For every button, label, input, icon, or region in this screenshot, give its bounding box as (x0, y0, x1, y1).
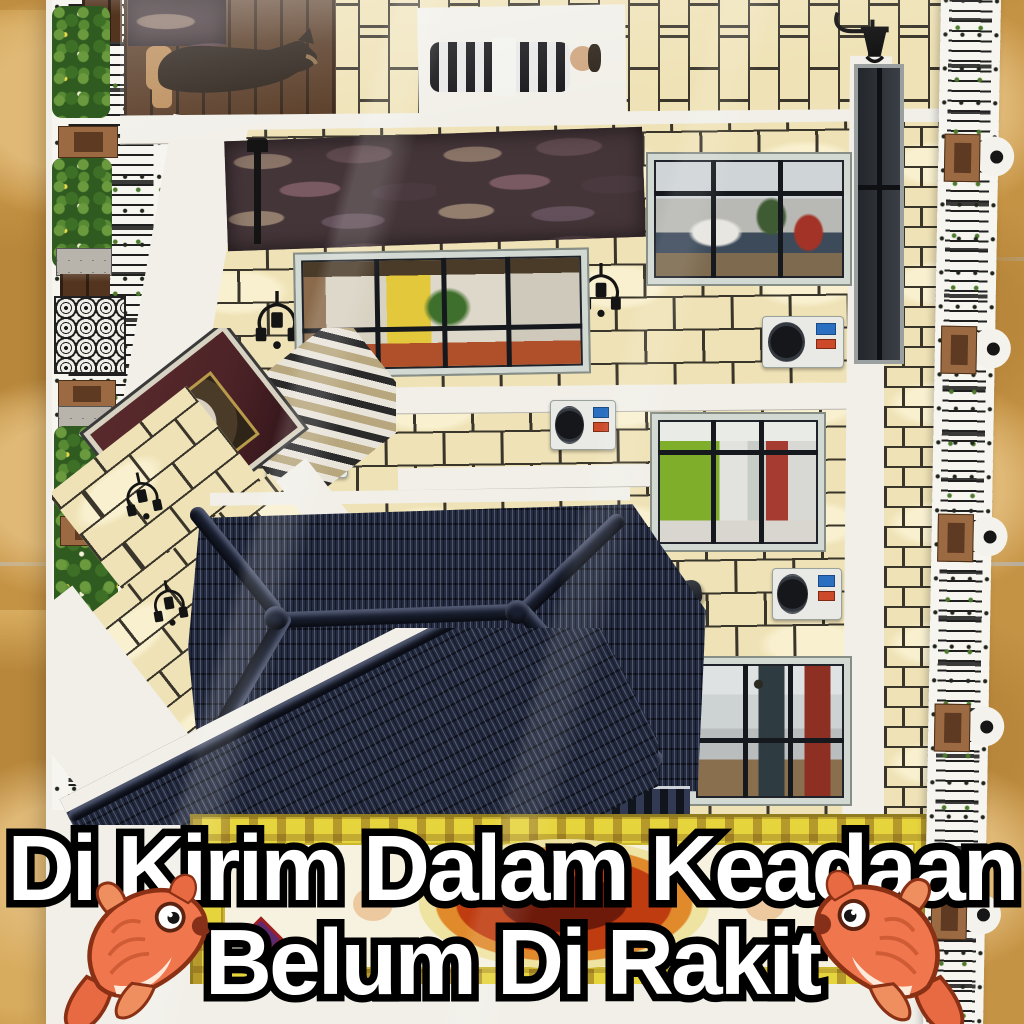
roof-ridge-cap (264, 606, 288, 630)
window-mullion (658, 450, 818, 455)
door-piece (60, 274, 110, 296)
roof-eave-ridge (66, 628, 570, 823)
living-room-window (690, 658, 850, 804)
ac-unit (762, 316, 844, 368)
ac-label (816, 323, 836, 335)
window-mullion (654, 191, 844, 196)
post-knob (980, 720, 993, 733)
bedroom-window (648, 154, 850, 284)
tall-dark-window (854, 64, 904, 364)
green-room-window (652, 414, 824, 550)
gate-post-piece (934, 704, 971, 753)
ac-fan (555, 406, 584, 444)
window-mullion (743, 664, 748, 798)
roof-sheet-small (59, 628, 658, 825)
product-photo: Di Kirim Dalam Keadaan Belum Di Rakit (0, 0, 1024, 1024)
stacked-stone-strip (224, 127, 646, 252)
ac-label (818, 575, 835, 587)
window-glass (698, 666, 842, 796)
lamp-post-pole (254, 146, 261, 244)
roof-sheet-small-clip (58, 628, 658, 825)
window-mullion (759, 420, 764, 544)
ac-fan (768, 322, 805, 362)
wall-lantern-icon (830, 8, 894, 66)
window-mullion (711, 160, 716, 278)
window-glass (656, 162, 842, 276)
ac-fan (777, 574, 808, 614)
fence-post (58, 126, 118, 158)
dog-figure (138, 16, 328, 118)
window-glass (660, 422, 816, 542)
lamp-post-head (247, 138, 268, 152)
woman-figure-hair (588, 44, 601, 72)
window-mullion (877, 68, 882, 360)
ac-label (593, 422, 609, 432)
roof-ridge-cap (505, 600, 529, 624)
woman-figure-sash (492, 38, 516, 96)
ac-label (593, 407, 609, 419)
window-mullion (696, 738, 844, 743)
garden-bush (52, 6, 110, 118)
tile-panel-piece (56, 248, 112, 276)
gate-post-piece (940, 326, 977, 375)
ac-unit (550, 400, 616, 450)
window-mullion (788, 664, 793, 798)
window-mullion (711, 420, 716, 544)
ac-label (818, 591, 835, 601)
ac-unit (772, 568, 842, 620)
window-mullion (778, 160, 783, 278)
window-mullion (858, 185, 900, 190)
gate-post-piece (937, 514, 974, 563)
ac-label (816, 339, 836, 349)
gate-post-piece (944, 134, 981, 183)
